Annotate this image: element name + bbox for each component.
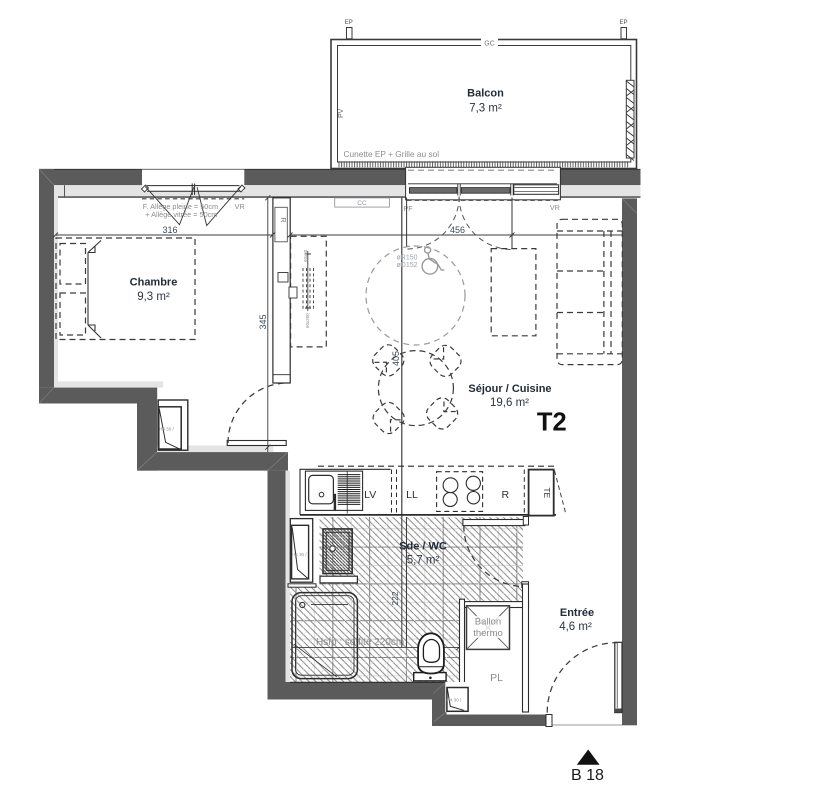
svg-text:+ Allège vitrée = 50cm: + Allège vitrée = 50cm xyxy=(145,210,217,219)
svg-text:222: 222 xyxy=(390,591,400,605)
svg-text:9,3 m²: 9,3 m² xyxy=(137,291,170,303)
svg-text:456: 456 xyxy=(450,225,465,235)
svg-text:Hsfp : soffite 220cm: Hsfp : soffite 220cm xyxy=(316,637,404,648)
svg-text:345: 345 xyxy=(258,314,268,329)
svg-text:øD152: øD152 xyxy=(397,262,418,269)
svg-text:60x200: 60x200 xyxy=(305,313,310,328)
svg-text:øR150: øR150 xyxy=(397,255,418,262)
svg-text:19,6 m²: 19,6 m² xyxy=(490,397,529,409)
svg-text:316: 316 xyxy=(162,225,177,235)
svg-text:GC: GC xyxy=(484,41,495,48)
svg-text:PV: PV xyxy=(338,108,345,118)
svg-text:EP: EP xyxy=(345,20,353,26)
svg-text:4,6 m²: 4,6 m² xyxy=(559,621,592,633)
svg-text:H4 30 /: H4 30 / xyxy=(447,698,463,703)
svg-text:5,7 m²: 5,7 m² xyxy=(407,555,440,567)
svg-text:60x60: 60x60 xyxy=(303,249,308,262)
svg-text:PL: PL xyxy=(490,672,503,684)
svg-text:PF: PF xyxy=(403,204,413,213)
svg-text:T2: T2 xyxy=(537,409,567,437)
svg-text:Séjour / Cuisine: Séjour / Cuisine xyxy=(468,383,551,395)
svg-text:B 18: B 18 xyxy=(571,767,604,784)
svg-text:LV: LV xyxy=(364,489,376,501)
svg-text:H6 30 /: H6 30 / xyxy=(159,427,175,432)
svg-text:TE: TE xyxy=(542,487,552,498)
svg-text:Cunette EP + Grille au sol: Cunette EP + Grille au sol xyxy=(344,149,440,159)
svg-text:7,3 m²: 7,3 m² xyxy=(469,103,502,115)
svg-text:EP: EP xyxy=(619,20,627,26)
svg-text:Balcon: Balcon xyxy=(467,88,504,100)
svg-text:thermo: thermo xyxy=(473,628,503,639)
svg-text:R: R xyxy=(502,489,510,501)
svg-text:R: R xyxy=(279,217,288,223)
svg-text:VR: VR xyxy=(550,203,560,212)
svg-text:LL: LL xyxy=(406,489,418,501)
svg-text:H6 30 /: H6 30 / xyxy=(292,552,308,557)
svg-text:Chambre: Chambre xyxy=(130,277,178,289)
svg-text:Entrée: Entrée xyxy=(560,607,594,619)
svg-text:Ballon: Ballon xyxy=(475,617,501,628)
svg-text:VR: VR xyxy=(235,202,245,211)
svg-text:CC: CC xyxy=(357,200,367,207)
